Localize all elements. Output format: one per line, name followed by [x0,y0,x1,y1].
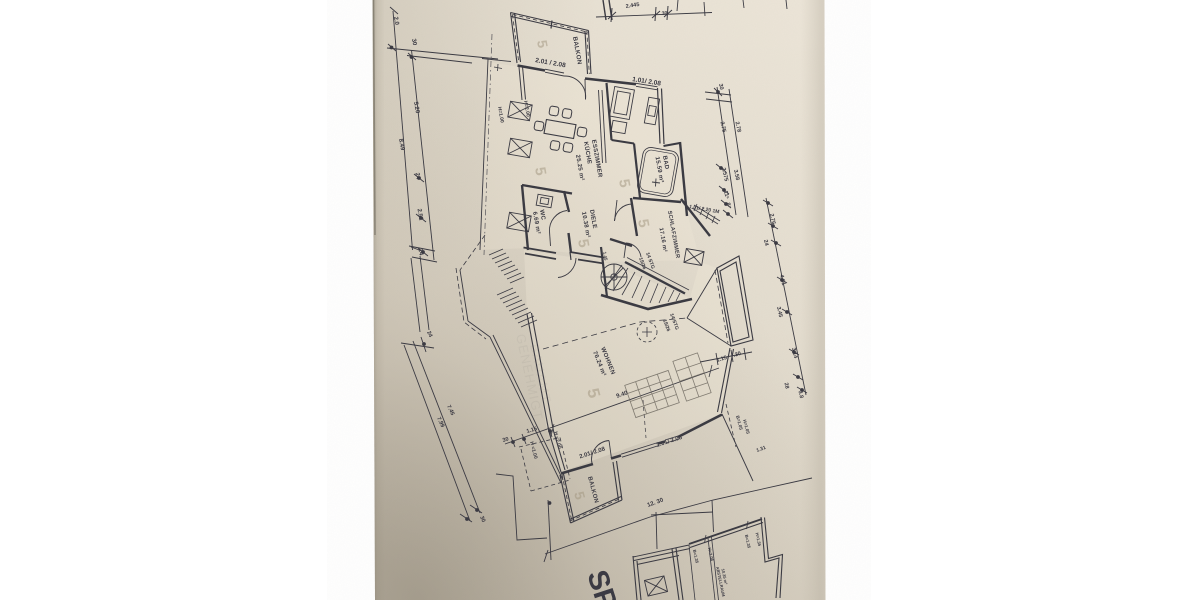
svg-text:30: 30 [717,83,724,90]
svg-text:28: 28 [783,382,790,389]
